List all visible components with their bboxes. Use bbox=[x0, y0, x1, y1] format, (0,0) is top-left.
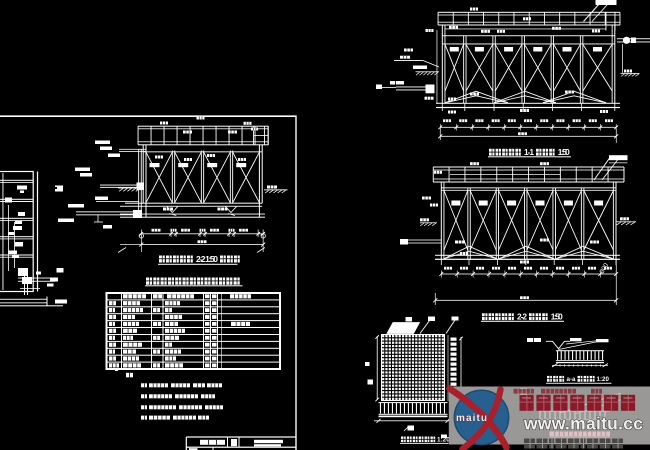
svg-text:2-2: 2-2 bbox=[517, 312, 527, 322]
svg-text:1-1: 1-1 bbox=[524, 147, 534, 157]
svg-text:maitu: maitu bbox=[456, 413, 487, 424]
svg-text:1:20: 1:20 bbox=[597, 376, 610, 383]
svg-text:1:50: 1:50 bbox=[551, 312, 563, 322]
svg-text:2-2 1:50: 2-2 1:50 bbox=[196, 254, 218, 264]
svg-text:a-a: a-a bbox=[567, 376, 577, 383]
svg-text:www.maitu.cc: www.maitu.cc bbox=[523, 414, 643, 434]
svg-text:1:50: 1:50 bbox=[558, 147, 570, 157]
